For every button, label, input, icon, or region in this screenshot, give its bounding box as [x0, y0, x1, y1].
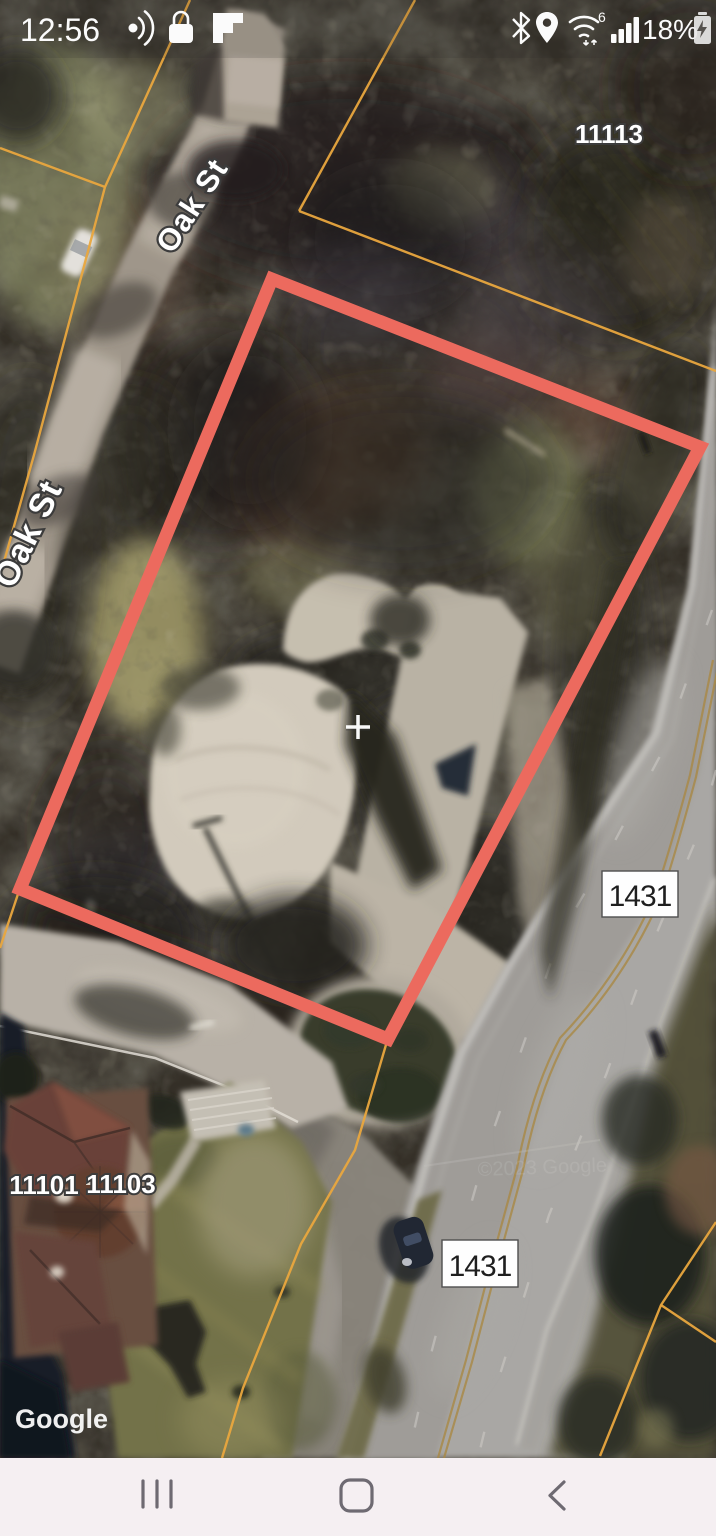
svg-text:11113: 11113	[575, 119, 643, 149]
svg-text:6: 6	[598, 9, 606, 25]
svg-text:11101: 11101	[9, 1170, 78, 1200]
svg-text:18%: 18%	[642, 14, 698, 45]
svg-text:Google: Google	[15, 1404, 108, 1434]
svg-text:1431: 1431	[449, 1250, 512, 1283]
svg-text:11103: 11103	[86, 1169, 155, 1199]
svg-text:1431: 1431	[609, 880, 672, 913]
svg-text:12:56: 12:56	[20, 12, 100, 48]
